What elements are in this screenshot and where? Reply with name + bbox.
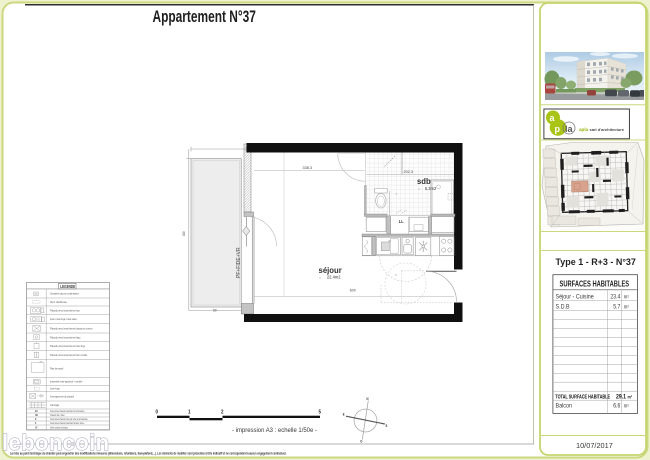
svg-text:2: 2	[221, 409, 224, 416]
svg-text:OB: OB	[35, 415, 38, 417]
svg-text:S.D.B: S.D.B	[556, 304, 570, 310]
svg-text:202.3: 202.3	[404, 169, 413, 174]
svg-text:- impression A3 : echelle 1/50: - impression A3 : echelle 1/50e -	[232, 427, 317, 434]
svg-text:m²: m²	[628, 394, 633, 400]
svg-text:Appartement N°37: Appartement N°37	[153, 8, 256, 26]
svg-text:Type 1 - R+3 - N°37: Type 1 - R+3 - N°37	[556, 257, 636, 267]
svg-text:5.3m2: 5.3m2	[425, 186, 437, 191]
svg-text:23.4: 23.4	[610, 294, 620, 300]
svg-text:Placard prevu branchement four: Placard prevu branchement four comble	[50, 354, 88, 357]
svg-text:E: E	[343, 412, 345, 416]
svg-text:Volet roulant electrique: Volet roulant electrique	[50, 426, 69, 429]
svg-text:22.4m2: 22.4m2	[327, 274, 341, 279]
svg-text:Plan de travail: Plan de travail	[50, 367, 64, 370]
svg-text:LEGENDE: LEGENDE	[60, 284, 75, 289]
svg-text:SURFACES HABITABLES: SURFACES HABITABLES	[560, 281, 630, 289]
svg-text:su: su	[319, 277, 321, 279]
svg-text:5.7: 5.7	[613, 304, 620, 310]
svg-text:450: 450	[182, 231, 187, 236]
svg-text:Placard prevu branchement frig: Placard prevu branchement frigo	[50, 336, 81, 339]
svg-text:CE et chauffe-eau: CE et chauffe-eau	[50, 301, 67, 304]
svg-text:5: 5	[319, 409, 322, 416]
svg-text:10/07/2017: 10/07/2017	[576, 441, 613, 450]
svg-text:su: su	[419, 189, 421, 191]
svg-text:0: 0	[156, 409, 159, 416]
svg-text:Chaudiere gaz et condensation: Chaudiere gaz et condensation	[50, 292, 80, 295]
svg-text:LL: LL	[399, 219, 404, 224]
svg-text:Ouvertures chassis haut par vo: Ouvertures chassis haut par volet a la f…	[50, 418, 88, 421]
svg-text:ensemble evier-egouttoir + meu: ensemble evier-egouttoir + meuble	[50, 380, 83, 383]
svg-text:Amen. lave-linge / lave-vaiss.: Amen. lave-linge / lave-vaiss.	[50, 318, 78, 321]
svg-text:Lave-linge: Lave-linge	[50, 387, 60, 390]
svg-text:29.1: 29.1	[616, 394, 627, 401]
svg-text:sarl d'architecture: sarl d'architecture	[590, 127, 625, 132]
svg-text:S: S	[386, 423, 388, 427]
svg-text:Placard prevu branchement plaq: Placard prevu branchement plaque et cuis…	[50, 327, 93, 330]
svg-text:La mise au point technique du: La mise au point technique du chantier p…	[10, 451, 286, 456]
svg-text:p: p	[555, 124, 561, 134]
svg-text:TOTAL SURFACE HABITABLE: TOTAL SURFACE HABITABLE	[555, 394, 610, 401]
svg-text:Chassis fixe / haut: Chassis fixe / haut	[50, 414, 65, 417]
svg-text:Ouvertures chassis basculant a: Ouvertures chassis basculant a la franca…	[50, 410, 85, 413]
svg-text:Carrelage: Carrelage	[50, 404, 60, 407]
svg-text:1: 1	[188, 409, 191, 416]
svg-text:Ouvertures chassis basculant f: Ouvertures chassis basculant fenetre vit…	[50, 422, 85, 425]
svg-text:m²: m²	[624, 294, 629, 299]
svg-text:60h: 60h	[350, 288, 356, 292]
svg-text:Séjour - Cuisine: Séjour - Cuisine	[556, 294, 594, 300]
svg-text:PF+FIDE+VR: PF+FIDE+VR	[236, 247, 242, 278]
svg-text:sdb: sdb	[417, 177, 431, 186]
svg-text:m²: m²	[624, 304, 629, 309]
svg-text:N: N	[367, 397, 369, 401]
svg-text:m²: m²	[624, 403, 629, 408]
svg-text:Balcon: Balcon	[556, 403, 572, 409]
svg-text:Amenagement de placard: Amenagement de placard	[50, 395, 75, 398]
svg-text:BA: BA	[35, 410, 38, 413]
svg-text:apla: apla	[579, 127, 589, 132]
svg-text:Placard prevu branchement four: Placard prevu branchement four	[50, 309, 80, 312]
svg-text:6.6: 6.6	[613, 403, 620, 409]
svg-text:90: 90	[213, 308, 217, 312]
svg-text:338.3: 338.3	[303, 165, 312, 170]
svg-text:la: la	[565, 124, 574, 134]
svg-text:Placard prevu branchement haut: Placard prevu branchement haut frigo	[50, 345, 86, 348]
